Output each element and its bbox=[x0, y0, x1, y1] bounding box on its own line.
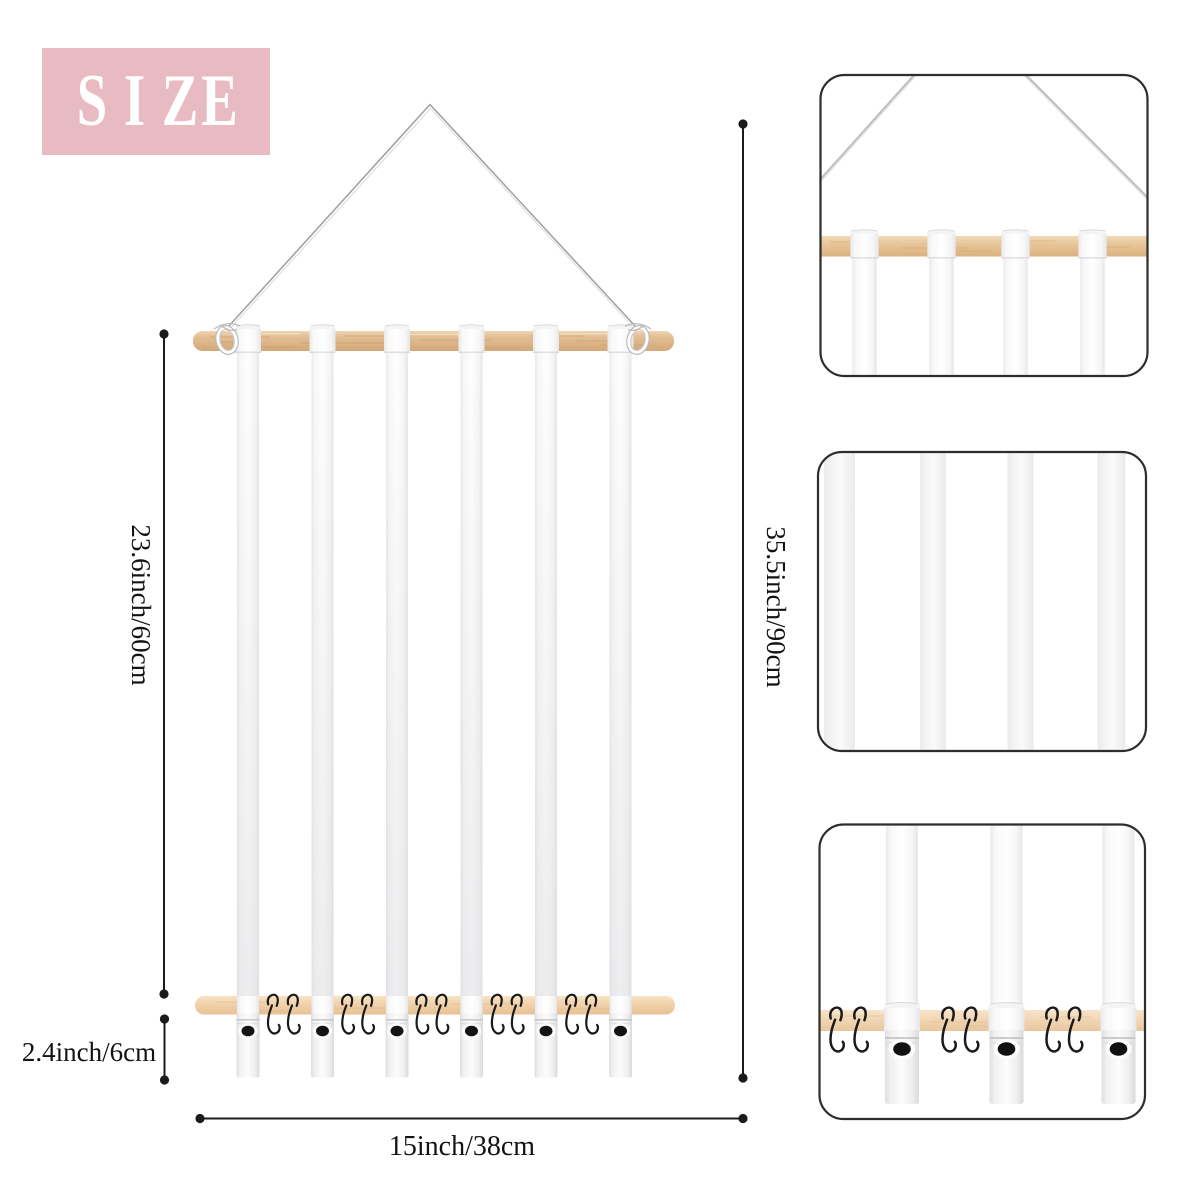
svg-text:Z: Z bbox=[162, 60, 199, 142]
svg-text:E: E bbox=[201, 60, 238, 142]
svg-text:23.6inch/60cm: 23.6inch/60cm bbox=[126, 524, 156, 685]
svg-text:35.5inch/90cm: 35.5inch/90cm bbox=[761, 526, 791, 687]
svg-text:15inch/38cm: 15inch/38cm bbox=[389, 1131, 535, 1162]
svg-text:S: S bbox=[77, 60, 107, 142]
svg-text:2.4inch/6cm: 2.4inch/6cm bbox=[22, 1037, 156, 1067]
svg-text:I: I bbox=[124, 60, 145, 142]
